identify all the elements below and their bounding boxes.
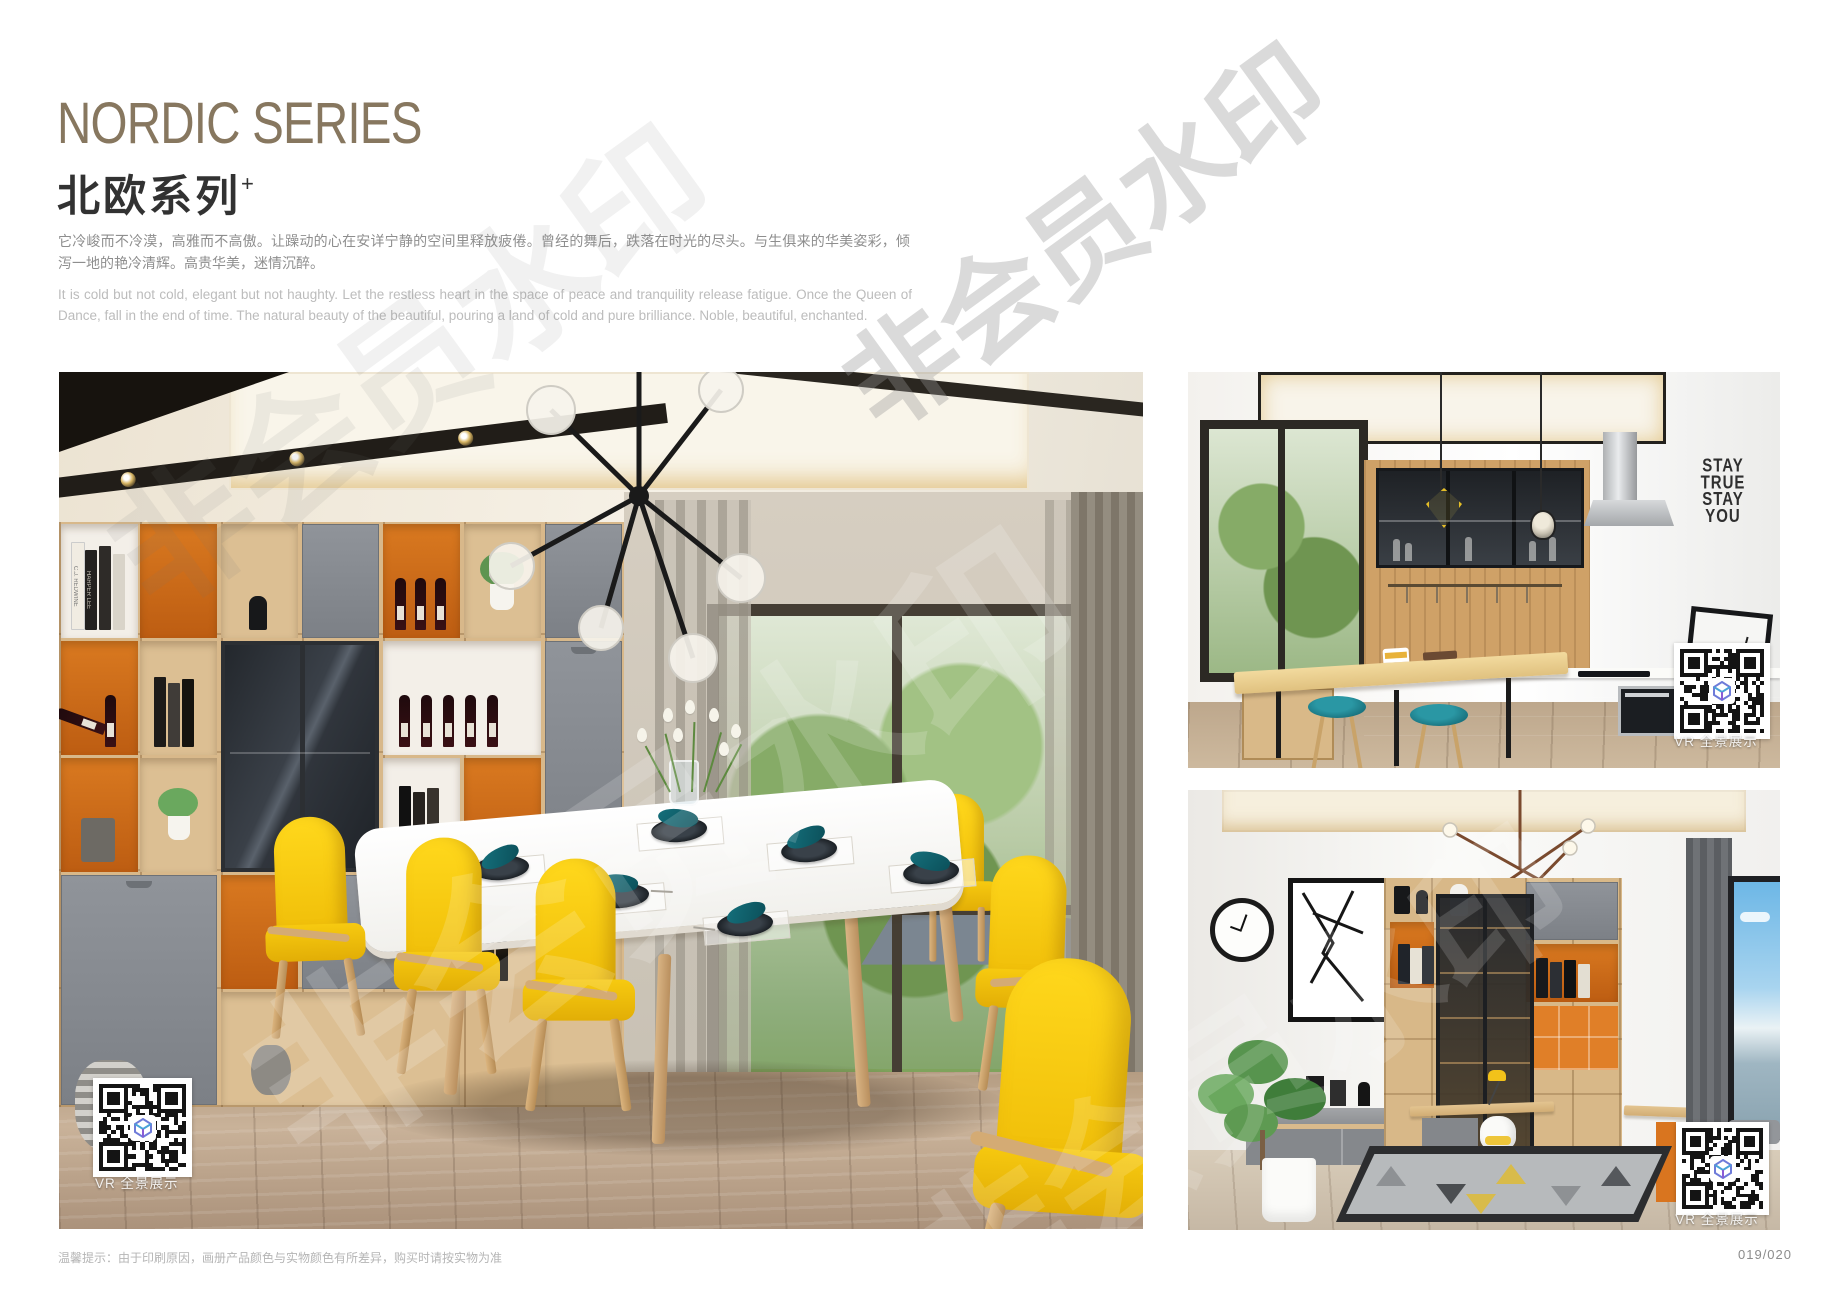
stool-leg	[1451, 720, 1466, 768]
cutting-board	[1423, 651, 1457, 661]
qr-module	[182, 1167, 186, 1171]
catalog-page: NORDIC SERIES 北欧系列+ 它冷峻而不冷漠，高雅而不高傲。让躁动的心…	[0, 0, 1836, 1307]
island-leg	[1276, 680, 1281, 758]
calla-lily	[663, 708, 673, 722]
cabinet-mullion	[1512, 471, 1516, 565]
stool-leg	[1413, 720, 1428, 768]
orange-niche-books	[1526, 944, 1618, 1002]
potted-plant	[1198, 1034, 1348, 1164]
calla-lily	[673, 728, 683, 742]
spotlight	[289, 451, 306, 468]
wine-bottle	[443, 695, 454, 747]
vr-qr-code	[1676, 1122, 1769, 1215]
chair-back	[536, 859, 616, 997]
page-title: NORDIC SERIES	[57, 94, 422, 154]
dining-chair-foreground	[951, 952, 1143, 1229]
chair-leg	[271, 960, 288, 1039]
shelf-cell-orange	[140, 524, 217, 638]
place-setting	[879, 842, 983, 901]
calla-lily	[709, 708, 719, 722]
jar	[1393, 539, 1400, 561]
mini-vase	[1358, 1082, 1370, 1106]
utensil-rail	[1388, 584, 1562, 587]
qr-logo-cube-icon	[1710, 1156, 1736, 1182]
plant-leaves	[158, 788, 198, 818]
jar	[1529, 541, 1536, 561]
dining-chair	[255, 815, 378, 1044]
wine-bottle	[395, 578, 406, 630]
dining-chair	[388, 838, 510, 1078]
wine-label	[437, 606, 444, 620]
wine-bottle-tilted	[59, 707, 107, 735]
wine-label	[81, 718, 97, 729]
spotlight	[120, 471, 137, 488]
book-spine	[1564, 960, 1576, 998]
wine-bottle	[399, 695, 410, 747]
jar	[1549, 537, 1556, 561]
rug-triangle	[1466, 1194, 1496, 1214]
jar	[1405, 543, 1412, 561]
wine-label	[401, 723, 408, 737]
island-leg	[1394, 690, 1399, 766]
wine-label	[489, 723, 496, 737]
description-english: It is cold but not cold, elegant but not…	[58, 284, 912, 326]
study-window	[1728, 876, 1780, 1140]
cooktop	[1578, 671, 1650, 677]
wall-decal: STAY TRUE STAY YOU	[1688, 458, 1758, 525]
hanging-utensil	[1406, 587, 1408, 603]
geometric-rug	[1336, 1146, 1672, 1222]
decal-line: YOU	[1688, 509, 1758, 526]
vr-qr-code	[1674, 643, 1770, 739]
jar	[1465, 537, 1472, 561]
window-mullion	[1278, 429, 1285, 673]
description-chinese: 它冷峻而不冷漠，高雅而不高傲。让躁动的心在安详宁静的空间里释放疲倦。曾经的舞后，…	[58, 230, 910, 274]
shelf-cell-books	[140, 641, 217, 755]
glass-shelf	[230, 752, 369, 754]
wine-label	[107, 723, 114, 737]
print-disclaimer: 温馨提示：由于印刷原因，画册产品颜色与实物颜色有所差异，购买时请按实物为准	[58, 1249, 502, 1266]
chair-back	[273, 816, 348, 941]
book-spine	[168, 683, 180, 747]
rug-field	[1346, 1154, 1662, 1214]
book-title: C.J. REDWINE	[72, 543, 78, 629]
bar-stool	[1410, 704, 1468, 768]
shelf-cell-wood	[221, 524, 298, 638]
desk-lamp	[1488, 1070, 1506, 1081]
stool-leg	[1311, 712, 1326, 768]
book-spine	[1550, 962, 1562, 998]
calla-lily	[685, 700, 695, 714]
wine-label	[423, 723, 430, 737]
abstract-art-frame	[1288, 878, 1392, 1022]
wine-label	[467, 723, 474, 737]
page-subtitle: 北欧系列+	[57, 160, 254, 221]
rug-triangle	[1436, 1184, 1466, 1204]
study-room-photo: VR 全景展示	[1188, 790, 1780, 1230]
shelf-cell-orange	[61, 758, 138, 872]
shelf-cell-books: C.J. REDWINE HARPER LEE	[61, 524, 138, 638]
cloud	[1740, 912, 1770, 922]
gray-top-cabinet	[1526, 882, 1618, 940]
wine-label	[445, 723, 452, 737]
page-number: 019/020	[1738, 1247, 1792, 1262]
hanging-utensil	[1496, 587, 1498, 603]
qr-logo-cube-icon	[1709, 678, 1735, 704]
hanging-utensil	[1526, 587, 1528, 603]
book-spine	[1398, 944, 1410, 984]
spotlight	[457, 430, 474, 447]
vr-qr-code	[93, 1078, 192, 1177]
place-setting	[693, 894, 797, 953]
chair-leg	[956, 1202, 1007, 1229]
stool-seat	[1308, 696, 1366, 718]
stool-leg	[1349, 712, 1364, 768]
built-in-oven	[1618, 686, 1682, 736]
kitchen-photo: STAY TRUE STAY YOU	[1188, 372, 1780, 768]
subtitle-plus: +	[241, 171, 254, 196]
vase-decor	[249, 596, 267, 630]
rug-triangle	[1601, 1166, 1631, 1186]
kitchen-window	[1200, 420, 1368, 682]
book-spine	[1578, 964, 1590, 998]
book-spine: C.J. REDWINE	[71, 542, 85, 630]
black-pendant-lamp	[1530, 510, 1556, 540]
chair-leg	[476, 988, 497, 1074]
vr-panorama-label: VR 全景展示	[1674, 730, 1758, 750]
wine-label	[397, 606, 404, 620]
range-hood	[1584, 500, 1674, 526]
wall-clock	[1210, 898, 1274, 962]
plant-pot	[168, 816, 190, 840]
wine-label	[417, 606, 424, 620]
clock-hand	[1240, 914, 1247, 930]
vr-panorama-label: VR 全景展示	[95, 1172, 179, 1192]
place-setting	[627, 800, 731, 859]
book-spine	[1410, 948, 1422, 984]
dining-chair	[516, 859, 646, 1113]
photo-frame-decor	[81, 818, 115, 862]
ceramic-jar	[251, 1045, 291, 1095]
black-vase	[1416, 890, 1428, 914]
chair-leg	[525, 1018, 548, 1111]
hood-chimney	[1603, 432, 1637, 502]
qr-logo-cube-icon	[130, 1115, 156, 1141]
hanging-utensil	[1466, 587, 1468, 603]
orange-cubby-grid	[1528, 1006, 1618, 1070]
rug-triangle	[1496, 1164, 1526, 1184]
chair-leg	[609, 1018, 632, 1111]
book-title: HARPER LEE	[85, 550, 91, 630]
chair-leg	[396, 988, 417, 1074]
shelf-cell-plant	[140, 758, 217, 872]
stool-seat	[1410, 704, 1468, 726]
plant-leaves	[1224, 1104, 1278, 1142]
book-spine	[182, 679, 194, 747]
subtitle-text: 北欧系列	[57, 173, 241, 221]
rug-triangle	[1551, 1186, 1581, 1206]
book-spine	[1536, 958, 1548, 998]
shelf-cell-wine-display	[61, 641, 138, 755]
oven-handle	[1625, 693, 1669, 697]
rug-triangle	[1376, 1166, 1406, 1186]
calla-lily	[637, 728, 647, 742]
wine-bottle	[421, 695, 432, 747]
book-spine	[1422, 946, 1434, 984]
chair-cushion	[1485, 1136, 1511, 1145]
black-books	[1394, 886, 1410, 914]
chair-back	[406, 838, 481, 969]
island-leg	[1506, 678, 1511, 758]
book-spine: HARPER LEE	[85, 550, 97, 630]
book-spine	[99, 546, 111, 630]
wine-bottle	[105, 695, 116, 747]
pendant-cord	[1540, 372, 1542, 512]
shelf-cell-gray-door	[302, 524, 379, 638]
place-setting	[757, 820, 861, 879]
wine-bottle	[415, 578, 426, 630]
vr-panorama-label: VR 全景展示	[1674, 1208, 1760, 1228]
calla-lily	[719, 742, 729, 756]
door-handle	[126, 881, 152, 888]
wine-bottle	[435, 578, 446, 630]
chair-leg	[929, 907, 936, 962]
book-spine	[154, 677, 166, 747]
chair-leg	[343, 957, 365, 1036]
flower-bouquet	[619, 702, 779, 782]
bar-stool	[1308, 696, 1366, 768]
orange-niche	[1390, 922, 1434, 988]
book-spine	[113, 554, 125, 630]
dining-room-photo: C.J. REDWINE HARPER LEE	[59, 372, 1143, 1229]
wine-bottle	[465, 695, 476, 747]
shelf-cell-orange-bottles	[383, 524, 460, 638]
calla-lily	[731, 724, 741, 738]
pendant-cord	[1440, 372, 1442, 490]
sputnik-chandelier	[489, 372, 789, 706]
flower-stem	[691, 722, 695, 792]
hanging-utensil	[1436, 587, 1438, 603]
plant-pot	[1262, 1158, 1316, 1222]
qr-module	[1760, 729, 1764, 733]
